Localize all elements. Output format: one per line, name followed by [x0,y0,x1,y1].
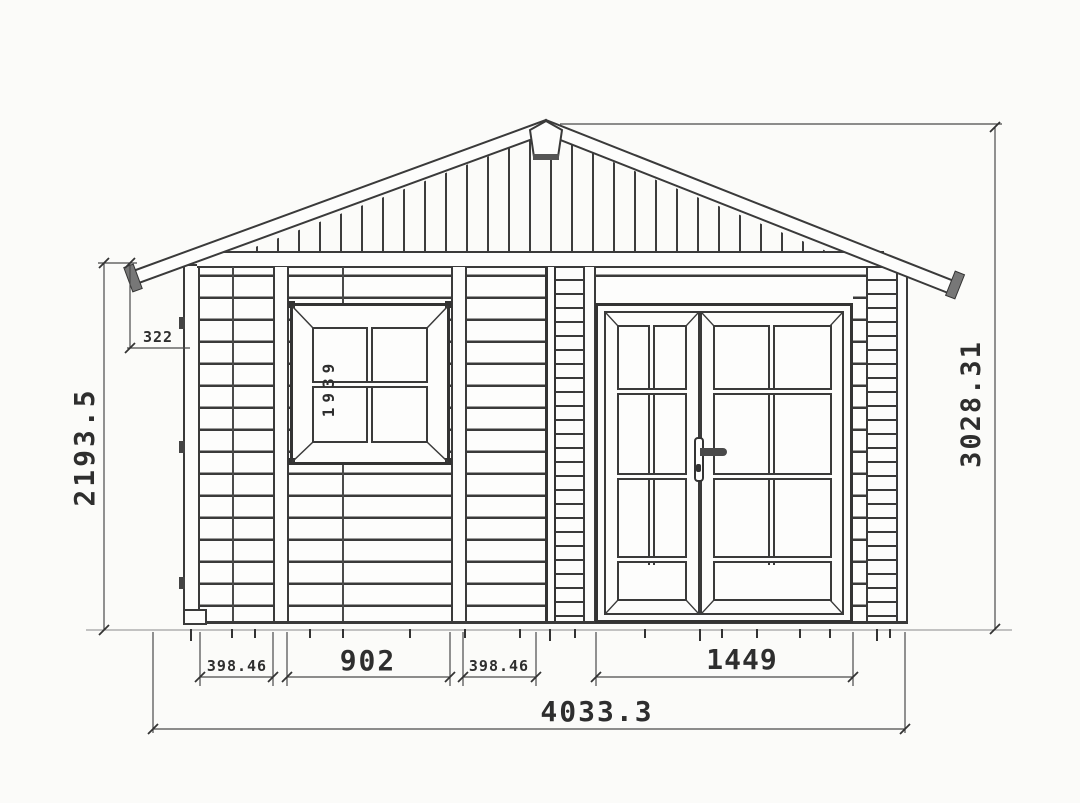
extension-stubs [191,629,890,641]
door-muntin-horizontal [617,388,687,395]
dim-total-height: 3028.31 [958,314,988,494]
corner-board-left [183,264,200,624]
door-muntin-vertical-right [768,325,775,565]
fascia-cap-left [124,264,142,292]
dim-window-mark: 1939 [321,333,341,443]
dim-mid-bay: 398.46 [454,659,544,677]
center-divider-board [545,267,556,623]
door-muntin-horizontal [713,473,832,480]
wall-edge-nub [179,317,185,329]
corner-board-right [896,264,908,624]
dim-wall-height: 2193.5 [71,362,101,532]
gable-battens [130,118,970,263]
siding-right-of-door [853,267,866,623]
door-handle-lever [700,448,727,456]
window-corner-block [288,301,295,308]
window-corner-block [288,458,295,465]
wall-edge-nub [179,441,185,453]
window-corner-block [445,301,452,308]
door-handle-backplate [694,437,704,482]
log-end-stack-center [556,267,585,623]
siding-joint-line [232,267,234,623]
wall-edge-nub [179,577,185,589]
siding-mid-bay [467,267,546,623]
siding-left-bay [200,267,273,623]
wall-top-plate [197,251,884,268]
door-muntin-horizontal [617,556,687,563]
door-muntin-horizontal [713,388,832,395]
base-foot-left [183,609,207,625]
trim-board-left-of-window [273,267,289,623]
fascia-cap-right [946,271,965,299]
door-muntin-vertical-left [648,325,655,565]
door-muntin-horizontal [617,473,687,480]
window-corner-block [445,458,452,465]
dim-door-bay: 1449 [682,646,802,676]
dim-left-bay: 398.46 [192,659,282,677]
siding-door-lintel [596,267,853,303]
door-keyhole [696,464,701,472]
door-muntin-horizontal [713,556,832,563]
dim-window-bay: 902 [313,647,423,677]
shed-elevation-drawing: 2193.5 322 1939 3028.31 398.46 902 398.4… [0,0,1080,803]
dim-eave-drop: 322 [123,330,193,348]
dim-total-width: 4033.3 [517,698,677,726]
log-end-stack-right [866,267,896,623]
trim-board-right-of-window [451,267,467,623]
